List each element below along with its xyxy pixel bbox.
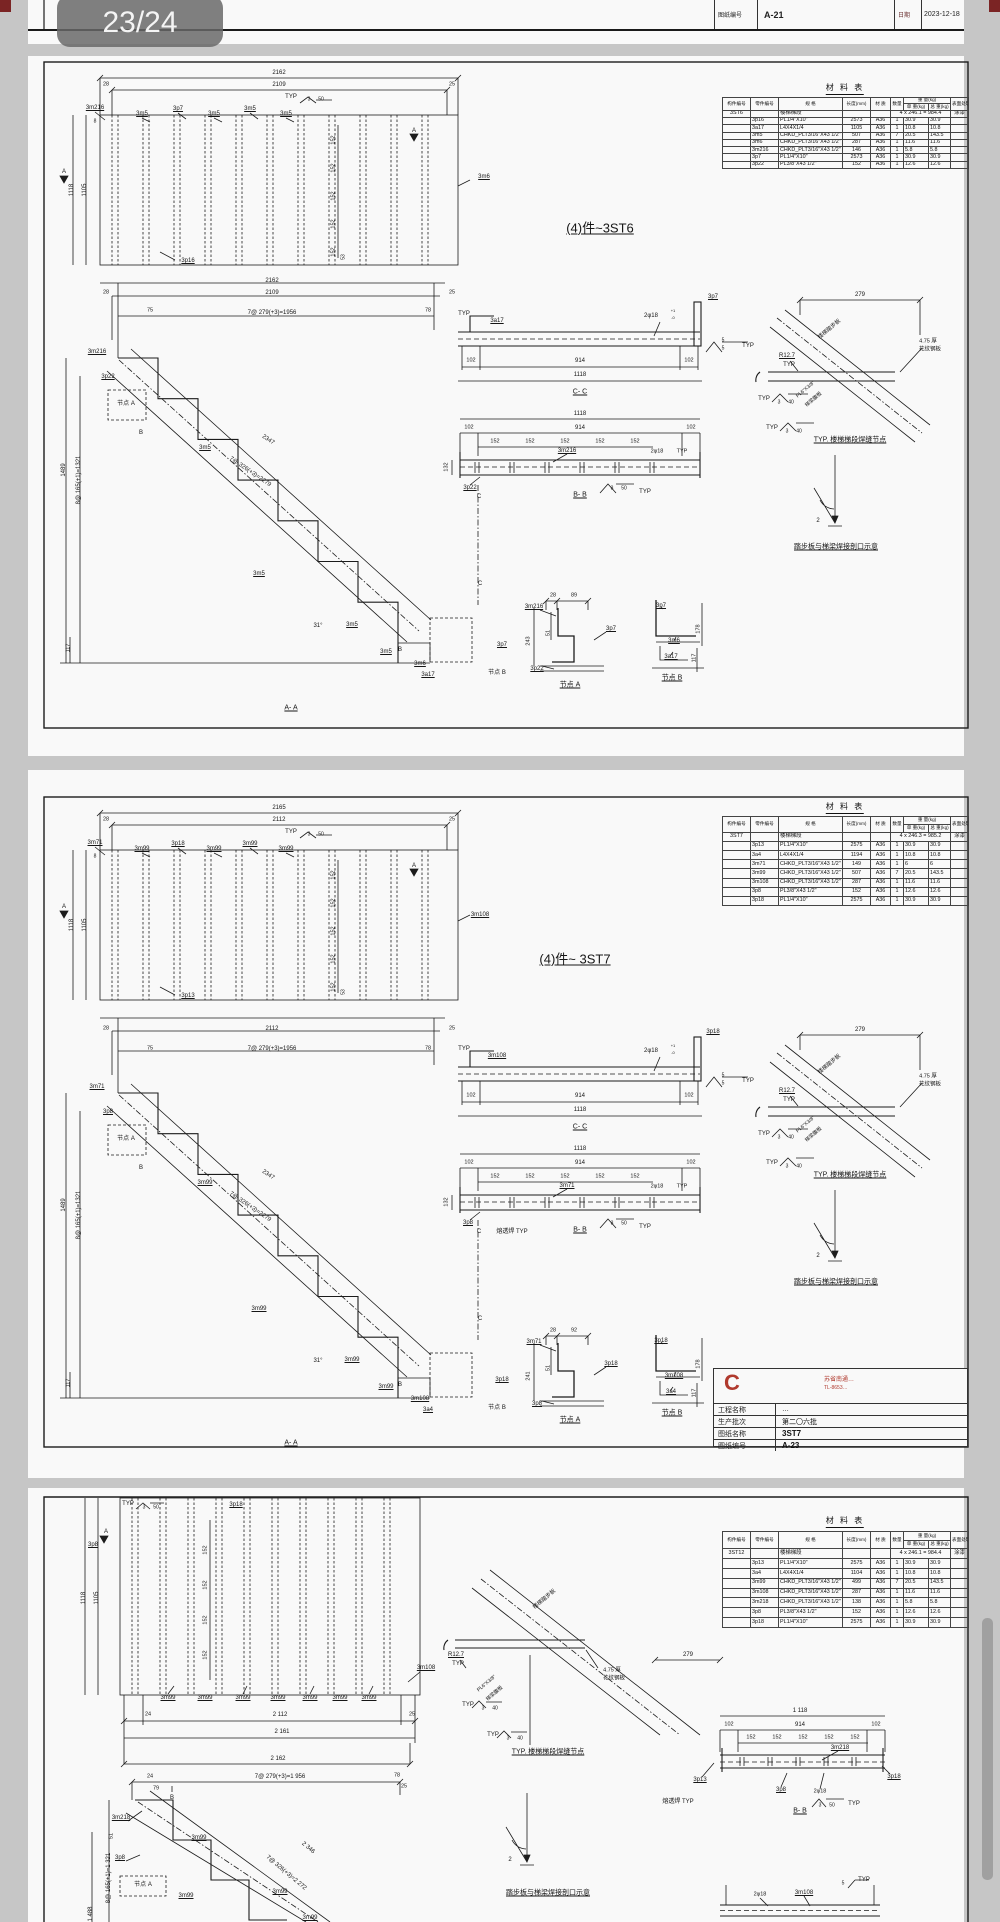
drawing-annotation: 3p7: [656, 603, 666, 609]
material-cell: PL1/4"X10": [779, 1618, 843, 1628]
material-cell: 30.9: [904, 1618, 929, 1628]
material-cell: 30.9: [904, 118, 929, 125]
material-row: 3m71CHKD_PLT3/16"X43 1/2"149A36166: [723, 860, 969, 869]
material-cell: 3m71: [751, 860, 779, 869]
company-logo: C: [724, 1372, 740, 1394]
material-cell: 10.8: [904, 851, 929, 860]
material-cell: 7: [891, 132, 904, 139]
material-cell: 3m216: [751, 147, 779, 154]
drawing-annotation: 2 162: [270, 1756, 285, 1762]
material-cell: 3m108: [751, 1588, 779, 1598]
material-cell: PL1/4"X10": [779, 1559, 843, 1569]
drawing-annotation: 2φ18: [644, 1048, 658, 1054]
material-cell: [951, 161, 969, 168]
drawing-annotation: 152: [331, 954, 337, 963]
material-cell: [723, 1559, 751, 1569]
drawing-annotation: TYP: [487, 1732, 499, 1738]
material-cell: 表面处理: [951, 1532, 969, 1549]
drawing-annotation: 50: [153, 1506, 159, 1511]
material-cell: 4 x 246.1 = 984.4: [891, 1549, 951, 1559]
material-cell: 2575: [843, 1618, 871, 1628]
drawing-annotation: 7@ 279(+3)=1956: [248, 310, 297, 316]
material-cell: [723, 154, 751, 161]
drawing-annotation: 152: [203, 1615, 209, 1624]
drawing-annotation: 3m99: [270, 1695, 285, 1701]
drawing-annotation: 3m108: [411, 1396, 429, 1402]
drawing-annotation: 279: [855, 1027, 865, 1033]
material-cell: 152: [843, 887, 871, 896]
drawing-annotation: 3m5: [199, 445, 211, 451]
drawing-annotation: 2162: [272, 70, 285, 76]
material-cell: [871, 832, 891, 841]
drawing-annotation: A: [62, 904, 66, 910]
drawing-annotation: 3m6: [414, 661, 426, 667]
material-cell: A36: [871, 842, 891, 851]
drawing-annotation: 3m71: [559, 1183, 574, 1189]
drawing-annotation: 8: [94, 120, 97, 125]
material-row: 3p13PL1/4"X10"2575A36130.930.9: [723, 842, 969, 851]
drawing-annotation: 78: [425, 308, 431, 314]
material-cell: 零件编号: [751, 98, 779, 111]
drawing-annotation: 50: [621, 1222, 627, 1227]
drawing-annotation: 243: [526, 636, 532, 645]
drawing-annotation: A: [412, 128, 416, 134]
drawing-annotation: 3m5: [136, 111, 148, 117]
material-cell: A36: [871, 118, 891, 125]
drawing-annotation: 50: [621, 487, 627, 492]
drawing-annotation: 53: [342, 989, 347, 995]
material-cell: 3m6: [751, 139, 779, 146]
material-cell: 10.8: [929, 125, 951, 132]
drawing-annotation: 1 118: [793, 1708, 808, 1714]
screen-corner-right: [989, 0, 1000, 12]
material-cell: 1: [891, 1568, 904, 1578]
drawing-annotation: 2109: [272, 82, 285, 88]
material-row: 3m108CHKD_PLT3/16"X43 1/2"287A36111.611.…: [723, 1588, 969, 1598]
drawing-annotation: 节点 A: [117, 401, 135, 407]
drawing-annotation: 25: [449, 82, 455, 88]
drawing-annotation: 3m71: [87, 840, 102, 846]
drawing-annotation: 25: [449, 817, 455, 823]
material-cell: 287: [843, 1588, 871, 1598]
material-cell: 数量: [891, 817, 904, 833]
material-cell: 20.5: [904, 132, 929, 139]
drawing-annotation: TYP: [758, 396, 770, 402]
material-row: 3a4L4X4X1/41194A36110.810.8: [723, 851, 969, 860]
drawing-annotation: 3: [786, 1165, 789, 1170]
drawing-annotation: 279: [683, 1652, 693, 1658]
material-cell: 表面处理: [951, 98, 969, 111]
drawing-annotation: B- B: [573, 492, 587, 499]
drawing-annotation: 3p18: [171, 841, 184, 847]
drawing-annotation: 梯梁腹板: [805, 1127, 824, 1144]
material-cell: 3a4: [751, 851, 779, 860]
drawing-annotation: 3p8: [88, 1542, 98, 1548]
drawing-annotation: 3m216: [558, 448, 576, 454]
material-cell: 长度(mm): [843, 817, 871, 833]
drawing-annotation: 3m5: [244, 106, 256, 112]
material-cell: [723, 887, 751, 896]
drawing-annotation: (4)件~3ST6: [566, 222, 634, 235]
material-cell: PL1/4"X10": [779, 118, 843, 125]
company-name-line2: TL-8653…: [824, 1385, 848, 1391]
material-cell: [871, 1549, 891, 1559]
drawing-annotation: 3m99: [235, 1695, 250, 1701]
material-cell: 长度(mm): [843, 1532, 871, 1549]
material-cell: [723, 125, 751, 132]
material-cell: [723, 1578, 751, 1588]
company-name-line1: 苏省南通…: [824, 1377, 854, 1384]
drawing-annotation: 7@ 326(+3)=2279: [228, 456, 272, 488]
material-cell: 3a4: [751, 1568, 779, 1578]
drawing-annotation: 2165: [272, 805, 285, 811]
drawing-annotation: 24: [147, 1774, 153, 1780]
material-cell: [951, 139, 969, 146]
drawing-annotation: TYP: [858, 1877, 870, 1883]
drawing-annotation: 40: [788, 401, 794, 406]
material-cell: [951, 1568, 969, 1578]
material-row: 3p22PL3/8"X43 1/2"152A36112.612.6: [723, 161, 969, 168]
material-cell: 涂漆: [951, 110, 969, 117]
material-cell: PL3/8"X43 1/2": [779, 1608, 843, 1618]
drawing-annotation: 53: [342, 254, 347, 260]
material-cell: [951, 851, 969, 860]
drawing-annotation: 152: [203, 1650, 209, 1659]
material-cell: 3p18: [751, 1618, 779, 1628]
material-row: 3m216CHKD_PLT3/16"X43 1/2"146A3615.85.8: [723, 147, 969, 154]
material-cell: [951, 869, 969, 878]
material-cell: 规 格: [779, 817, 843, 833]
drawing-annotation: 3m99: [378, 1384, 393, 1390]
drawing-annotation: 3: [778, 401, 781, 406]
drawing-annotation: 914: [575, 1093, 585, 1099]
drawing-annotation: 3p18: [604, 1361, 617, 1367]
material-row: 3m108CHKD_PLT3/16"X43 1/2"287A36111.611.…: [723, 878, 969, 887]
drawing-annotation: 3p22: [530, 666, 543, 672]
material-cell: 3a17: [751, 125, 779, 132]
material-cell: [951, 154, 969, 161]
material-cell: 3ST7: [723, 832, 751, 841]
drawing-annotation: 8@ 165(+1)=1 321: [106, 1853, 112, 1903]
material-cell: 1: [891, 851, 904, 860]
drawing-annotation: 25: [401, 1784, 407, 1790]
material-cell: 1: [891, 118, 904, 125]
drawing-annotation: 3m108: [417, 1665, 435, 1671]
drawing-annotation: 178: [696, 1359, 702, 1368]
material-cell: 30.9: [929, 1559, 951, 1569]
material-cell: A36: [871, 1618, 891, 1628]
material-cell: CHKD_PLT3/16"X43 1/2": [779, 1588, 843, 1598]
drawing-annotation: 117: [66, 644, 72, 653]
drawing-annotation: 3m99: [332, 1695, 347, 1701]
material-cell: A36: [871, 878, 891, 887]
drawing-annotation: TYP: [848, 1801, 860, 1807]
material-cell: 1: [891, 1598, 904, 1608]
drawing-annotation: 152: [595, 439, 604, 445]
material-cell: [951, 132, 969, 139]
material-cell: PL1/4"X10": [779, 154, 843, 161]
drawing-annotation: 2 161: [274, 1729, 289, 1735]
material-cell: 总 重(kg): [929, 104, 951, 110]
drawing-annotation: 3: [778, 1136, 781, 1141]
drawing-annotation: 3m99: [134, 846, 149, 852]
drawing-annotation: A- A: [284, 1440, 297, 1447]
drawing-annotation: 2112: [273, 817, 286, 823]
drawing-annotation: 152: [331, 870, 337, 879]
material-cell: 零件编号: [751, 1532, 779, 1549]
drawing-annotation: R12.7: [448, 1652, 464, 1658]
material-row: 3m99CHKD_PLT3/16"X43 1/2"507A36720.5143.…: [723, 869, 969, 878]
material-cell: 总 重(kg): [929, 1540, 951, 1549]
drawing-annotation: 914: [575, 1160, 585, 1166]
drawing-annotation: B: [139, 1165, 143, 1171]
drawing-annotation: 75: [147, 1046, 153, 1052]
material-cell: CHKD_PLT3/16"X43 1/2": [779, 878, 843, 887]
drawing-annotation: 3m218: [831, 1745, 849, 1751]
drawing-annotation: 3m71: [526, 1339, 541, 1345]
drawing-annotation: A: [104, 1529, 108, 1535]
drawing-annotation: 152: [630, 439, 639, 445]
material-cell: 3p13: [751, 1559, 779, 1569]
drawing-annotation: TYP: [783, 362, 795, 368]
drawing-annotation: 3a4: [666, 1389, 676, 1395]
material-cell: [723, 132, 751, 139]
material-cell: 11.6: [929, 1588, 951, 1598]
drawing-annotation: 3: [308, 98, 311, 103]
drawing-annotation: 1489: [61, 463, 67, 476]
material-cell: 11.6: [904, 139, 929, 146]
material-cell: 1104: [843, 1568, 871, 1578]
drawing-annotation: 2 112: [273, 1712, 288, 1718]
material-cell: [951, 1578, 969, 1588]
material-cell: 11.6: [904, 1588, 929, 1598]
drawing-annotation: 3p18: [229, 1502, 242, 1508]
drawing-annotation: TYP: [458, 311, 470, 317]
material-cell: [723, 1618, 751, 1628]
drawing-annotation: 102: [684, 1093, 693, 1099]
drawing-annotation: TYP: [458, 1046, 470, 1052]
drawing-annotation: 3m99: [272, 1889, 287, 1895]
drawing-annotation: 132: [444, 1197, 450, 1206]
drawing-annotation: 25: [449, 1026, 455, 1032]
drawing-annotation: 102: [684, 358, 693, 364]
drawing-annotation: 50: [318, 833, 324, 838]
drawing-annotation: 3m6: [478, 174, 490, 180]
material-cell: 10.8: [929, 851, 951, 860]
drawing-annotation: 花纹钢板: [919, 347, 941, 353]
drawing-annotation: 50: [318, 98, 324, 103]
drawing-annotation: 3m108: [471, 912, 489, 918]
drawing-annotation: 楼梯踏步板: [818, 319, 843, 341]
drawing-annotation: 31°: [313, 623, 322, 629]
drawing-annotation: 3m108: [795, 1890, 813, 1896]
drawing-annotation: 7@ 326(+3)=2 272: [265, 1854, 308, 1891]
drawing-annotation: 51: [546, 630, 552, 636]
material-cell: [751, 1549, 779, 1559]
drawing-annotation: 1118: [574, 411, 586, 417]
drawing-annotation: 25: [409, 1712, 415, 1718]
drawing-annotation: B: [398, 647, 402, 653]
material-cell: 构件编号: [723, 98, 751, 111]
drawing-annotation: 3m99: [251, 1306, 266, 1312]
material-cell: 规 格: [779, 98, 843, 111]
material-cell: A36: [871, 869, 891, 878]
material-cell: [723, 851, 751, 860]
material-cell: 3ST6: [723, 110, 751, 117]
material-cell: [723, 860, 751, 869]
material-cell: 20.5: [904, 1578, 929, 1588]
annotation-layer: 216221092825TYP3503m2163m53p73m53m53m53m…: [0, 0, 1000, 1922]
drawing-annotation: 3a17: [421, 672, 434, 678]
material-cell: [723, 1608, 751, 1618]
material-cell: [723, 1588, 751, 1598]
material-cell: 30.9: [904, 896, 929, 905]
material-cell: [843, 1549, 871, 1559]
drawing-annotation: 3m5: [346, 622, 358, 628]
material-cell: 20.5: [904, 869, 929, 878]
material-cell: 构件编号: [723, 817, 751, 833]
material-cell: 表面处理: [951, 817, 969, 833]
drawing-annotation: 152: [490, 439, 499, 445]
drawing-annotation: 152: [331, 926, 337, 935]
drawing-annotation: 节点 B: [488, 1405, 506, 1411]
drawing-annotation: 4.75 厚: [603, 1668, 621, 1674]
drawing-annotation: 3m5: [208, 111, 220, 117]
drawing-annotation: 3p13: [693, 1777, 706, 1783]
material-cell: 12.6: [904, 887, 929, 896]
material-cell: 5.8: [904, 147, 929, 154]
material-table-title-2: 材 料 表: [826, 801, 864, 814]
drawing-annotation: 3m99: [242, 841, 257, 847]
drawing-annotation: 3m71: [89, 1084, 104, 1090]
material-cell: 10.8: [904, 125, 929, 132]
drawing-annotation: 3: [143, 1506, 146, 1511]
drawing-annotation: 3p18: [706, 1029, 719, 1035]
drawing-annotation: 熔透焊 TYP: [496, 1229, 527, 1235]
drawing-annotation: 152: [850, 1735, 859, 1741]
drawing-annotation: 3m5: [280, 111, 292, 117]
drawing-annotation: C: [478, 1316, 482, 1322]
drawing-annotation: 3m99: [197, 1695, 212, 1701]
material-cell: CHKD_PLT3/16"X43 1/2": [779, 869, 843, 878]
material-cell: 单 重(kg): [904, 824, 929, 832]
drawing-annotation: 152: [630, 1174, 639, 1180]
drawing-annotation: 28: [103, 290, 109, 296]
drawing-annotation: 152: [798, 1735, 807, 1741]
drawing-annotation: 1118: [69, 184, 75, 196]
material-cell: [723, 869, 751, 878]
drawing-annotation: 5: [722, 339, 725, 344]
material-cell: 12.6: [929, 887, 951, 896]
material-cell: 零件编号: [751, 817, 779, 833]
material-cell: [751, 110, 779, 117]
drawing-annotation: 914: [575, 425, 585, 431]
material-cell: 143.5: [929, 869, 951, 878]
drawing-annotation: 1489: [61, 1198, 67, 1211]
drawing-annotation: 3p8: [776, 1787, 786, 1793]
material-row: 3m218CHKD_PLT3/16"X43 1/2"138A3615.85.8: [723, 1598, 969, 1608]
drawing-annotation: TYP. 楼梯梯段焊缝节点: [814, 1172, 887, 1179]
material-cell: A36: [871, 1568, 891, 1578]
drawing-annotation: 3: [786, 430, 789, 435]
material-cell: 499: [843, 1578, 871, 1588]
drawing-annotation: 25: [449, 290, 455, 296]
drawing-annotation: C: [477, 494, 481, 500]
material-cell: 287: [843, 139, 871, 146]
drawing-annotation: 3p8: [103, 1109, 113, 1115]
material-cell: 3p7: [751, 154, 779, 161]
drawing-annotation: 节点 B: [662, 675, 683, 682]
drawing-annotation: 1118: [69, 919, 75, 931]
material-cell: PL1/4"X10": [779, 896, 843, 905]
material-cell: 143.5: [929, 1578, 951, 1588]
drawing-annotation: 5: [722, 1074, 725, 1079]
drawing-annotation: 3m99: [278, 846, 293, 852]
drawing-annotation: 3m99: [191, 1835, 206, 1841]
material-cell: [723, 896, 751, 905]
material-cell: 1: [891, 147, 904, 154]
material-cell: 规 格: [779, 1532, 843, 1549]
material-cell: 3m99: [751, 869, 779, 878]
material-cell: 3m218: [751, 1598, 779, 1608]
material-cell: CHKD_PLT3/16"X43 1/2": [779, 860, 843, 869]
material-cell: 3m108: [751, 878, 779, 887]
material-cell: 涂漆: [951, 1549, 969, 1559]
material-cell: 146: [843, 147, 871, 154]
drawing-annotation: 节点 A: [117, 1136, 135, 1142]
material-cell: 143.5: [929, 132, 951, 139]
drawing-annotation: TYP: [285, 94, 297, 100]
material-row: 3p13PL1/4"X10"2575A36130.930.9: [723, 1559, 969, 1569]
drawing-annotation: 102: [724, 1722, 733, 1728]
drawing-annotation: +1: [671, 309, 676, 313]
material-cell: 3m5: [751, 132, 779, 139]
material-cell: 3p16: [751, 118, 779, 125]
material-cell: 10.8: [904, 1568, 929, 1578]
material-cell: [951, 1588, 969, 1598]
material-cell: 149: [843, 860, 871, 869]
material-cell: 长度(mm): [843, 98, 871, 111]
title-block-row-sheet-no: 图纸编号 A-23: [714, 1440, 967, 1451]
material-row: 3m6CHKD_PLT3/16"X43 1/2"287A36111.611.6: [723, 139, 969, 146]
drawing-annotation: 89: [571, 593, 577, 599]
drawing-annotation: 3p13: [181, 993, 194, 999]
drawing-annotation: 3: [308, 833, 311, 838]
material-cell: 3p22: [751, 161, 779, 168]
drawing-annotation: 2φ18: [651, 449, 664, 455]
drawing-annotation: 3: [507, 1737, 510, 1742]
material-cell: 11.6: [929, 139, 951, 146]
material-cell: CHKD_PLT3/16"X43 1/2": [779, 139, 843, 146]
material-cell: 12.6: [904, 161, 929, 168]
scrollbar-thumb[interactable]: [982, 1618, 993, 1880]
drawing-annotation: TYP: [742, 343, 754, 349]
drawing-annotation: 1105: [82, 919, 88, 932]
drawing-annotation: 3p18: [887, 1774, 900, 1780]
material-cell: A36: [871, 1608, 891, 1618]
drawing-annotation: 51: [546, 1365, 552, 1371]
material-cell: [723, 1568, 751, 1578]
material-cell: A36: [871, 125, 891, 132]
drawing-annotation: 3m108: [665, 1373, 683, 1379]
title-block-row-project: 工程名称 …: [714, 1404, 967, 1416]
material-cell: 楼梯梯段: [779, 110, 843, 117]
document-viewer[interactable]: 图纸编号 A-21 日期 2023-12-18: [0, 0, 1000, 1922]
drawing-annotation: A: [62, 169, 66, 175]
drawing-annotation: 2φ18: [814, 1789, 827, 1795]
material-cell: 单 重(kg): [904, 104, 929, 110]
drawing-annotation: 3p18: [495, 1377, 508, 1383]
